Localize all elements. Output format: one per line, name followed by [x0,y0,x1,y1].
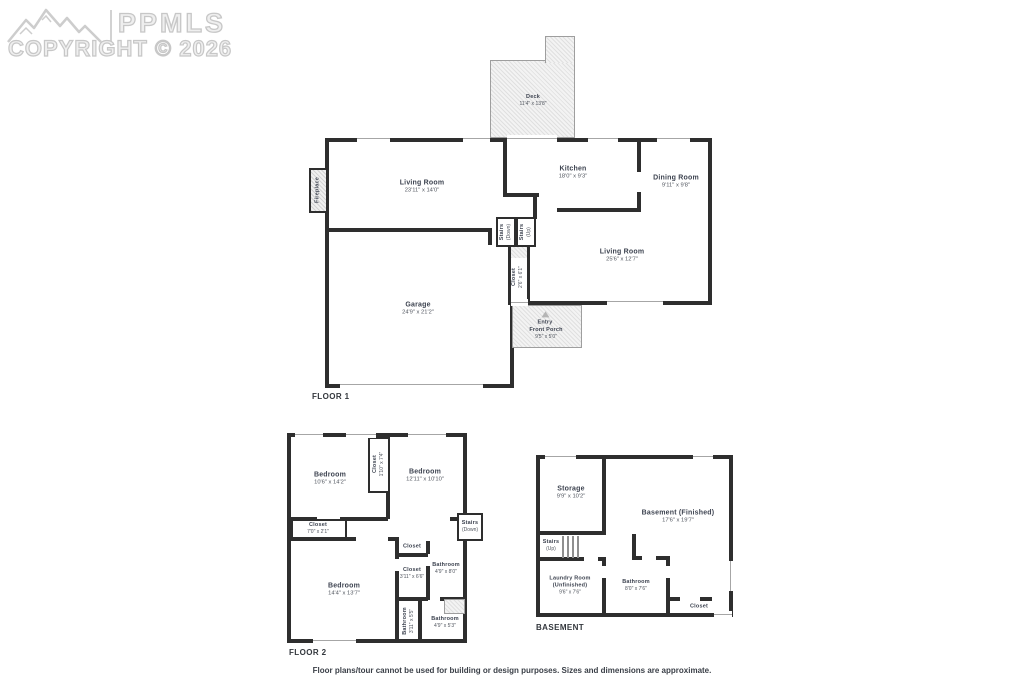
room-label-bedroom-2: Bedroom 12'11" x 10'10" [406,468,444,485]
stair-tread [577,536,579,558]
wall [536,613,733,617]
wall [325,228,492,232]
floor-plan-canvas: PPMLS COPYRIGHT © 2026 Living Room 23'11… [0,0,1024,682]
entry-arrow-icon [541,311,549,317]
wall [503,138,507,197]
room-label-stairs-up-basement: Stairs (Up) [543,539,560,553]
deck-area-notch [545,36,575,63]
window-marker [657,135,690,142]
room-label-deck: Deck 11'4" x 13'8" [519,94,546,108]
window-marker [545,453,576,460]
window-marker [511,299,528,306]
wall [536,531,602,535]
room-label-closet-3: Closet 7'0" x 2'1" [307,522,329,536]
disclaimer-text: Floor plans/tour cannot be used for buil… [0,666,1024,675]
wall [557,208,641,212]
window-marker [408,431,446,438]
room-label-closet-floor1: Closet 2'6" x 6'1" [511,266,525,288]
wall [533,193,537,219]
window-marker [714,611,732,618]
wall [666,560,670,566]
floor1-label: FLOOR 1 [312,392,349,401]
room-label-bathroom-basement: Bathroom 8'0" x 7'6" [622,579,650,593]
wall [395,571,399,643]
wall [602,578,606,617]
room-label-closet-small: Closet [403,543,421,550]
room-label-storage: Storage 9'9" x 10'2" [557,485,586,502]
room-label-entry: Entry [537,311,552,326]
watermark-copyright: COPYRIGHT © 2026 [8,36,232,62]
wall [602,455,606,535]
window-marker [340,381,483,388]
window-marker [727,561,734,591]
room-label-closet-vertical: Closet 1'10" x 7'4" [372,452,386,477]
wall [700,597,712,601]
window-marker [588,135,618,142]
wall [536,455,540,617]
room-label-bedroom-1: Bedroom 10'6" x 14'2" [314,471,346,488]
room-label-living-room-2: Living Room 25'6" x 12'7" [600,248,645,265]
wall [399,553,428,557]
room-label-living-room-1: Living Room 23'11" x 14'0" [400,179,445,196]
wall [666,597,680,601]
stair-tread [572,536,574,558]
room-label-front-porch: Front Porch 9'5" x 5'0" [529,327,562,341]
wall [632,556,642,560]
room-label-closet-4: Closet 3'11" x 6'6" [400,567,424,581]
wall [708,138,712,305]
room-label-fireplace: Fireplace [314,177,321,203]
stair-landing-hatch [511,246,527,258]
basement-label: BASEMENT [536,623,584,632]
room-label-bathroom-rotated: Bathroom 3'11" x 5'5" [402,607,416,635]
room-label-dining-room: Dining Room 9'11" x 9'8" [653,174,699,191]
wall [386,493,390,519]
wall [340,517,388,521]
bathroom-hatch [444,599,465,614]
room-label-closet-basement: Closet [690,603,708,610]
room-label-bathroom-1: Bathroom 4'9" x 8'0" [432,562,460,576]
window-marker [295,431,323,438]
window-marker [607,298,663,305]
window-marker [463,135,490,142]
wall [656,556,670,560]
wall [729,455,733,617]
wall [463,539,467,643]
room-label-laundry-room: Laundry Room (Unfinished) 9'6" x 7'6" [549,576,590,597]
room-label-bathroom-2: Bathroom 4'9" x 5'3" [431,616,459,630]
wall [527,245,530,305]
window-marker [507,135,557,142]
floor2-label: FLOOR 2 [289,648,326,657]
wall [637,138,641,172]
room-label-stairs-down-floor2: Stairs (Down) [462,520,479,534]
wall [426,566,430,600]
wall [637,192,641,212]
wall [418,601,422,643]
room-label-garage: Garage 24'9" x 21'2" [402,301,434,318]
watermark: PPMLS COPYRIGHT © 2026 [6,4,104,51]
window-marker [313,637,356,644]
wall [463,433,467,515]
wall [426,541,430,554]
room-label-basement-finished: Basement (Finished) 17'6" x 19'7" [642,509,715,526]
watermark-brand: PPMLS [118,8,226,39]
room-label-bedroom-3: Bedroom 14'4" x 13'7" [328,582,360,599]
window-marker [357,135,390,142]
stair-tread [562,536,564,558]
window-marker [346,431,376,438]
wall [602,560,606,566]
wall [395,597,428,601]
window-marker [693,453,713,460]
room-label-stairs-up-floor1: Stairs (Up) [519,224,533,241]
stair-tread [567,536,569,558]
room-label-stairs-down-floor1: Stairs (Down) [499,224,513,241]
wall [488,228,492,245]
room-label-kitchen: Kitchen 18'0" x 9'3" [559,165,588,182]
